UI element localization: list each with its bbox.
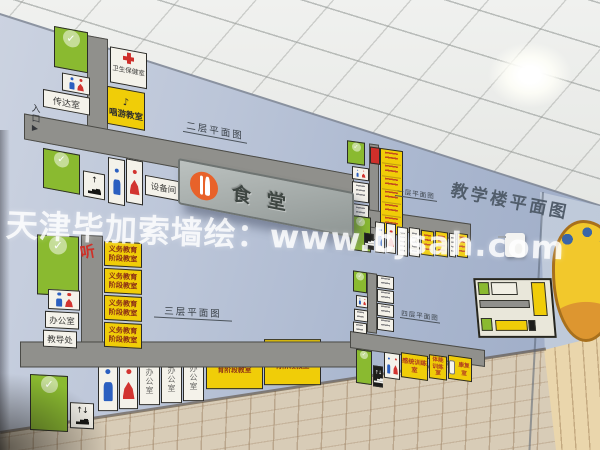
singing-room-label: 唱游教室 (109, 105, 143, 123)
room-rehab: 康复室 (448, 355, 472, 382)
check-icon: ✓ (41, 376, 58, 394)
stairs-icon: ↑↓ (373, 365, 383, 387)
entrance-label: 入口 ▶ (28, 102, 42, 149)
steps-glyph (88, 183, 101, 195)
arrow-right-icon: ▶ (32, 123, 38, 133)
room-sensory-training: 感统训练室 (401, 352, 428, 381)
mini-plan-mural (473, 278, 557, 338)
male-icon (112, 168, 122, 196)
male-icon (68, 76, 75, 90)
corridor (479, 300, 530, 308)
female-icon (393, 358, 398, 375)
stairs-icon (528, 320, 536, 331)
room-toilet-sign (384, 352, 400, 380)
female-icon (77, 78, 84, 92)
room-toilet-sign (352, 166, 369, 181)
female-icon (65, 292, 73, 307)
female-icon (363, 298, 366, 305)
photo-scene: ✓ 传达室 入口 ▶ 卫生保健室 ♪ 唱游教室 二层平面图 ✓ ↑ 设备间 (0, 0, 600, 450)
red-cross-icon (123, 52, 134, 65)
floor2-title: 二层平面图 (183, 117, 247, 144)
room-small-yellow (495, 320, 528, 331)
room-small-label (377, 289, 394, 304)
check-icon: ✓ (360, 350, 368, 359)
health-room-label: 卫生保健室 (112, 64, 145, 78)
room-green: ✓ (353, 270, 367, 293)
floor4-plan-mural: ✓ 四层平面图 ✓ ↑↓ 感统训练室 体能训练室 康复室 (350, 268, 488, 402)
room-small-label (491, 282, 518, 295)
room-small-label (377, 275, 394, 290)
room-green (481, 318, 493, 331)
steps-glyph (374, 375, 383, 383)
corridor (367, 272, 377, 333)
room-small-label (377, 317, 394, 332)
rehab-label: 康复室 (457, 360, 471, 378)
left-edge-shadow (0, 130, 10, 450)
room-equipment: 设备间 (145, 175, 182, 202)
male-icon (55, 292, 63, 307)
check-icon: ✓ (63, 29, 80, 49)
room-strip-labels (531, 282, 548, 316)
room-green: ✓ (30, 374, 68, 432)
ceiling-light (488, 42, 572, 108)
male-icon (356, 169, 360, 178)
room-office: 办公室 (45, 311, 79, 330)
room-toilet-sign (48, 289, 80, 311)
room-red (370, 147, 380, 165)
floor3-title: 三层平面图 (154, 302, 232, 321)
room-green: ✓ (347, 140, 365, 166)
check-icon: ✓ (356, 272, 364, 281)
room-classroom: 义务教育阶段教室 (104, 295, 142, 322)
room-fitness-training: 体能训练室 (429, 354, 447, 381)
room-classroom: 义务教育阶段教室 (104, 322, 142, 349)
room-green: ✓ (54, 26, 88, 73)
room-health: 卫生保健室 (110, 46, 147, 89)
room-small-label (352, 181, 369, 203)
floor4-title: 四层平面图 (400, 307, 440, 324)
check-icon: ✓ (54, 151, 69, 169)
room-toilet-sign (356, 295, 368, 309)
male-icon (358, 298, 361, 305)
female-icon (130, 168, 140, 195)
room-green: ✓ (356, 349, 372, 385)
male-icon (102, 369, 114, 401)
stairs-icon: ↑ (83, 170, 105, 200)
entrance-text: 入口 (29, 102, 42, 124)
room-singing: ♪ 唱游教室 (107, 86, 145, 131)
room-small-label (353, 321, 367, 334)
steps-glyph (76, 414, 89, 425)
room-classroom: 义务教育阶段教室 (104, 268, 142, 295)
fork-spoon-icon (190, 169, 218, 202)
floor3-plan-mural: ✓ 听 义务教育阶段教室 义务教育阶段教室 义务教育阶段教室 义务教育阶段教室 … (30, 238, 340, 450)
room-toilet-male (108, 157, 125, 206)
female-icon (123, 369, 135, 399)
male-icon (386, 357, 391, 374)
room-toilet-sign (62, 72, 90, 95)
room-small-label (377, 303, 394, 318)
door-icon (449, 360, 455, 375)
room-small-label (354, 309, 368, 323)
room-dean-office: 教导处 (43, 330, 77, 349)
cutlery-glyph (190, 169, 218, 202)
room-green: ✓ (43, 148, 80, 195)
stairs-icon: ↑↓ (70, 402, 94, 429)
room-toilet-female (126, 158, 143, 205)
check-icon: ✓ (352, 142, 361, 152)
female-icon (362, 170, 366, 179)
room-green (478, 282, 490, 295)
